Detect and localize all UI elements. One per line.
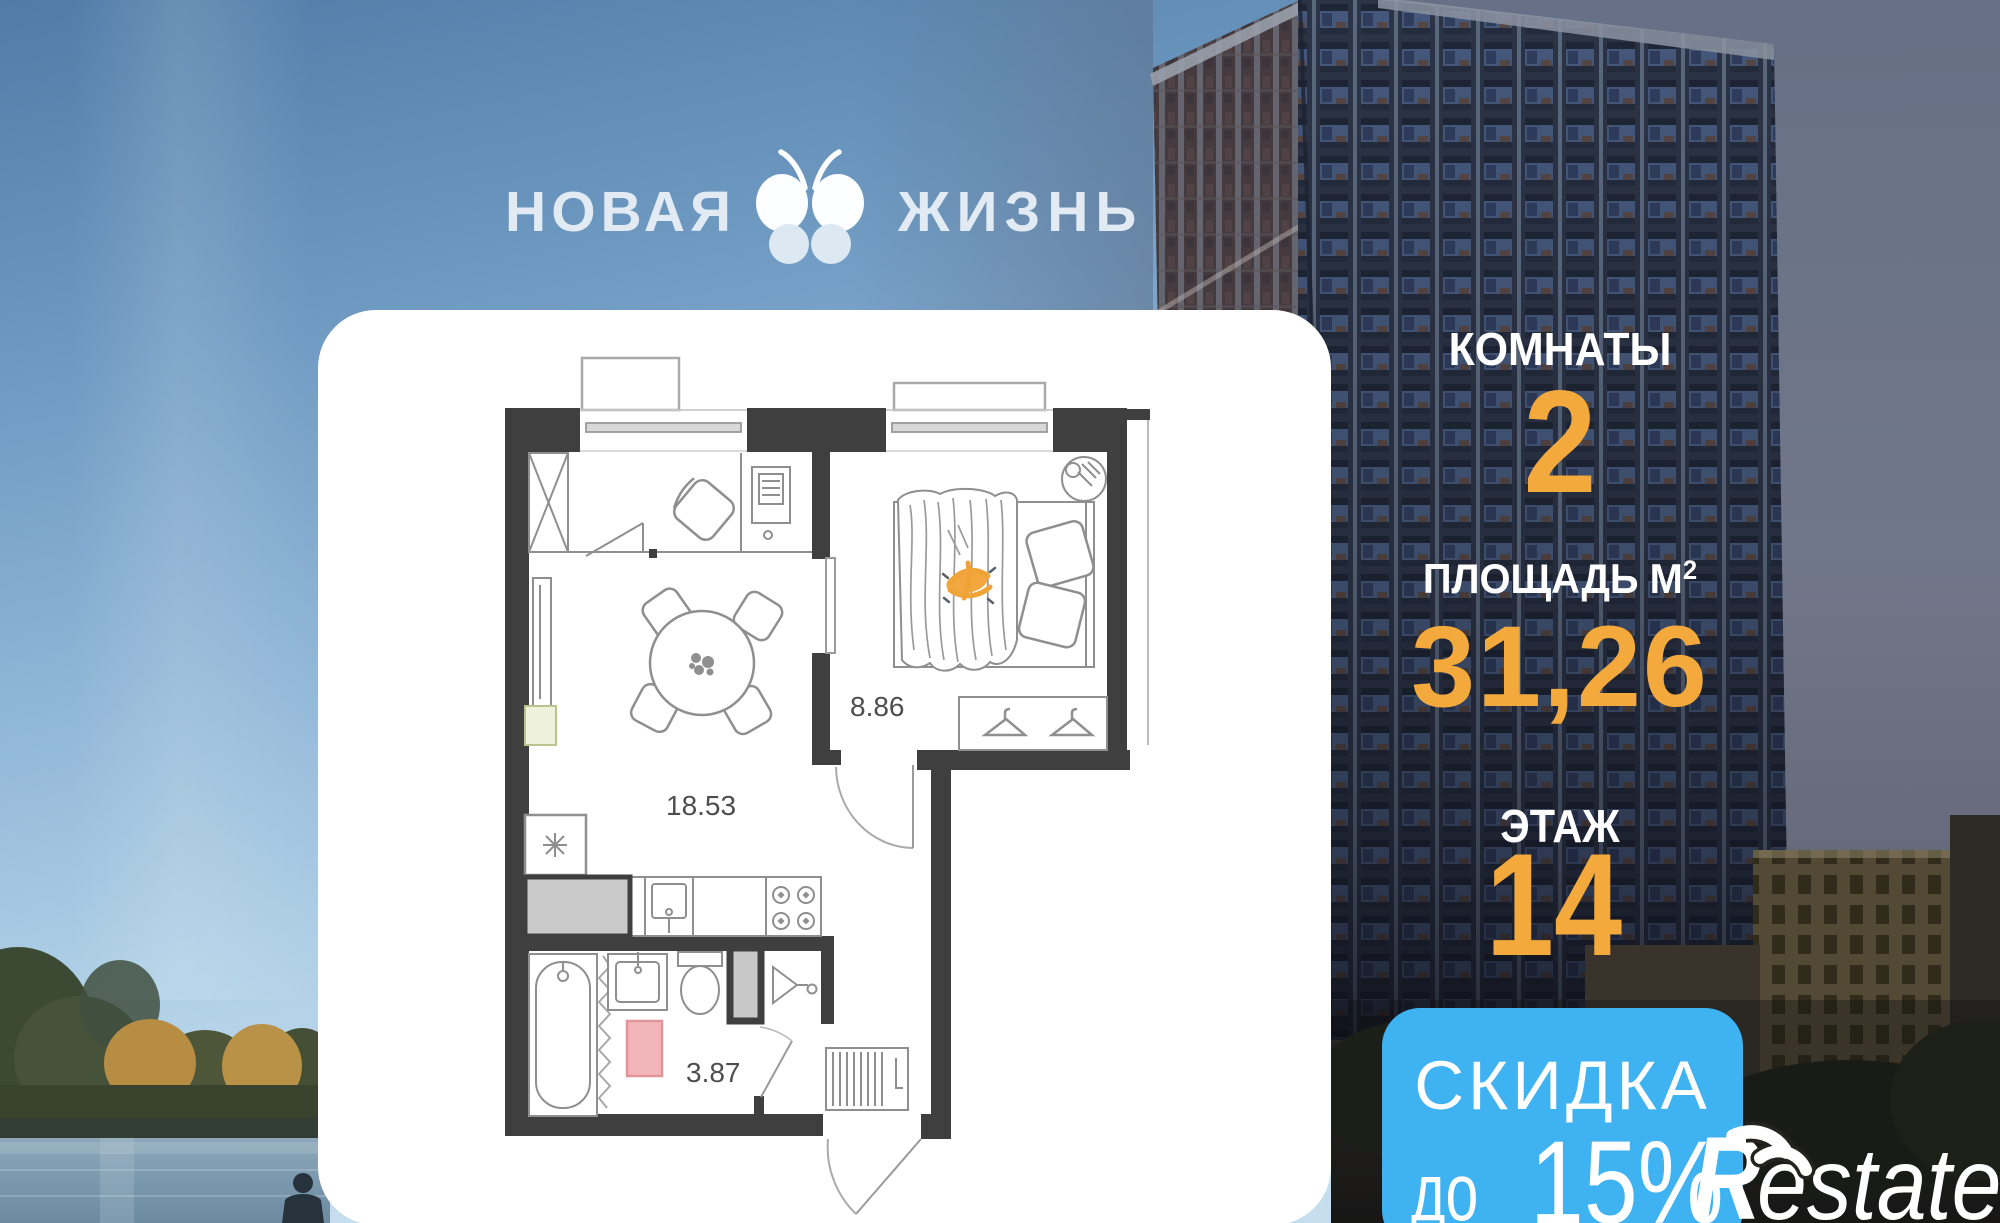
svg-text:3.87: 3.87 — [686, 1057, 741, 1088]
svg-text:8.86: 8.86 — [850, 691, 905, 722]
svg-text:18.53: 18.53 — [666, 790, 736, 821]
